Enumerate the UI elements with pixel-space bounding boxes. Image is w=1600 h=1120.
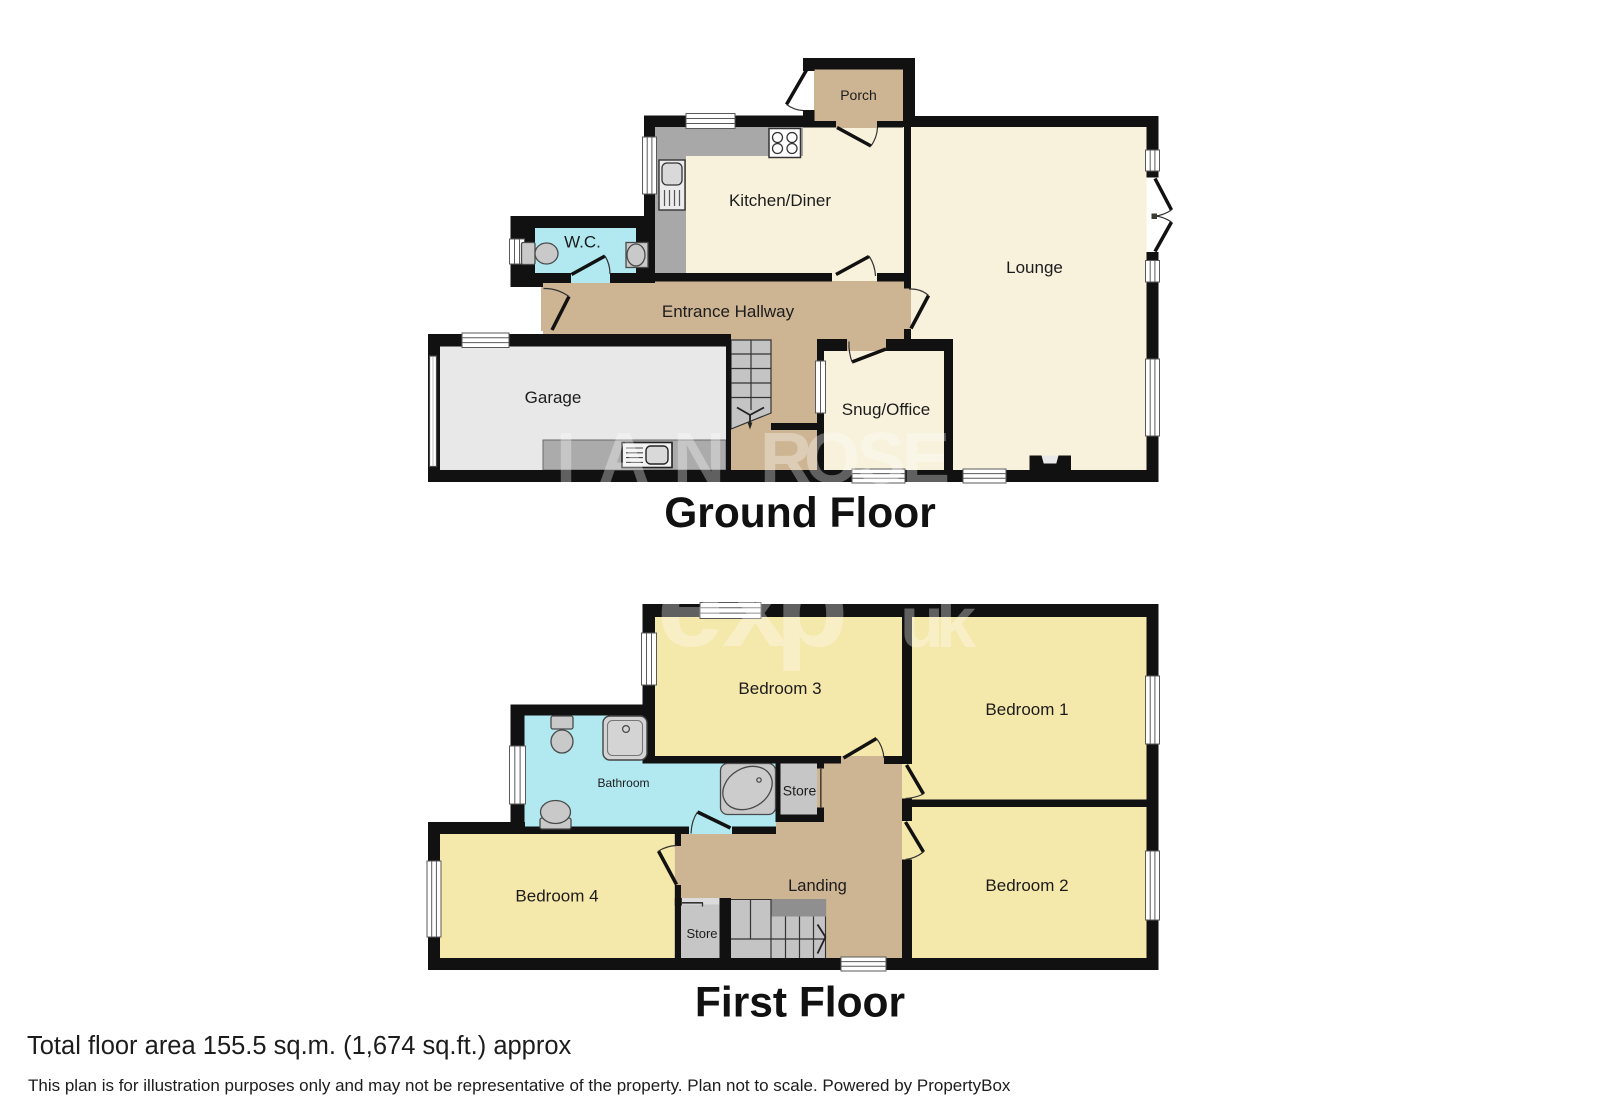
svg-text:Kitchen/Diner: Kitchen/Diner [729,191,831,210]
svg-text:Total floor area 155.5 sq.m. (: Total floor area 155.5 sq.m. (1,674 sq.f… [27,1032,572,1060]
svg-text:uk: uk [900,583,977,663]
svg-text:Snug/Office: Snug/Office [842,400,931,419]
svg-text:ROSE: ROSE [760,419,950,499]
svg-text:Garage: Garage [525,388,582,407]
svg-text:Store: Store [783,783,817,799]
svg-text:Bedroom 3: Bedroom 3 [738,679,821,698]
svg-text:Bedroom 2: Bedroom 2 [985,876,1068,895]
svg-text:This plan is for illustration: This plan is for illustration purposes o… [28,1076,1011,1095]
svg-text:Entrance Hallway: Entrance Hallway [662,302,795,321]
svg-text:Bathroom: Bathroom [597,776,649,790]
svg-text:Bedroom 4: Bedroom 4 [515,887,598,906]
svg-text:First Floor: First Floor [695,980,905,1027]
svg-text:Bedroom 1: Bedroom 1 [985,700,1068,719]
svg-text:Store: Store [686,926,717,941]
svg-text:Porch: Porch [840,87,877,103]
svg-text:Landing: Landing [788,877,847,895]
svg-text:W.C.: W.C. [564,233,601,252]
svg-text:Lounge: Lounge [1006,258,1063,277]
svg-text:exp: exp [657,538,848,672]
